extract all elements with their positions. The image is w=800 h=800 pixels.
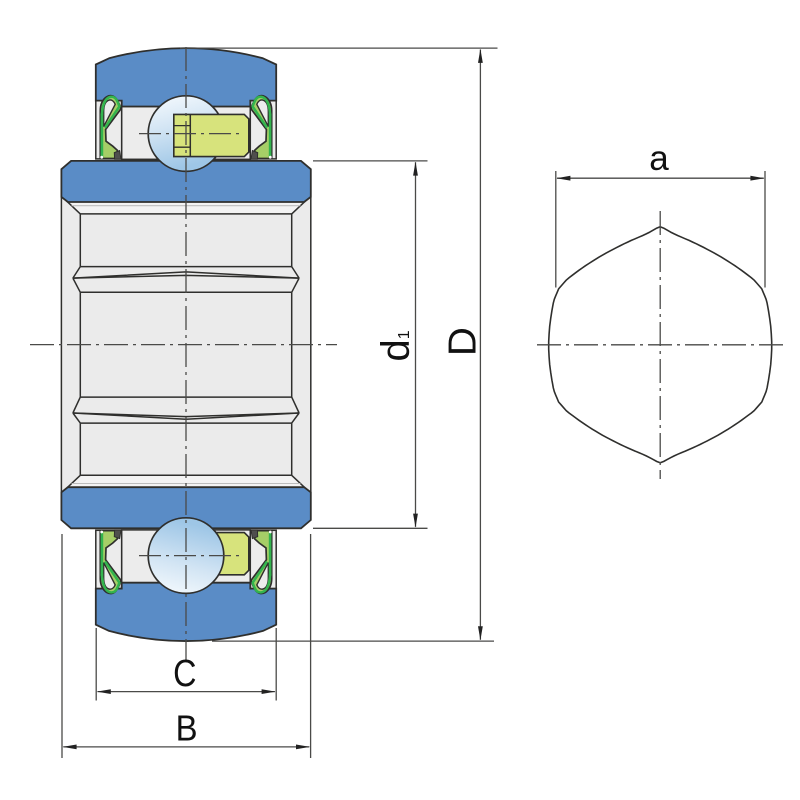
- svg-text:D: D: [441, 327, 484, 356]
- svg-text:a: a: [649, 139, 669, 178]
- svg-text:B: B: [176, 709, 198, 749]
- svg-text:C: C: [173, 653, 196, 695]
